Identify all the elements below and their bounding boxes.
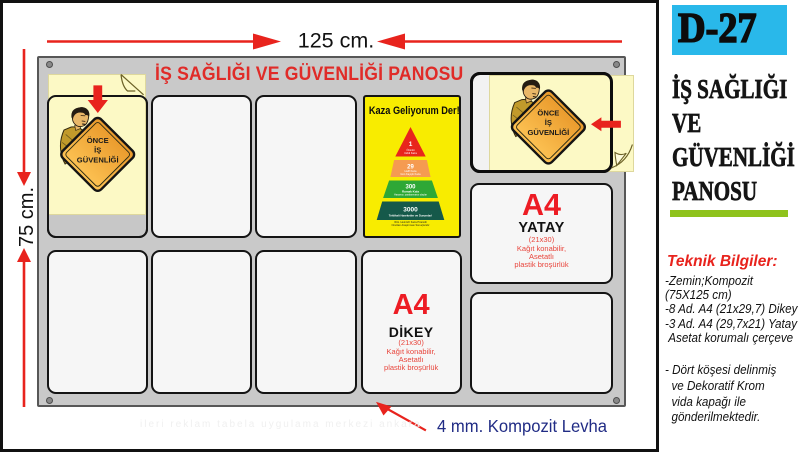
svg-text:125 cm.: 125 cm.: [298, 29, 374, 53]
svg-text:Tehlikeli Hareketler ve Duruml: Tehlikeli Hareketler ve Durumlar!: [389, 214, 433, 218]
svg-text:1: 1: [409, 141, 413, 148]
svg-text:Hasarsız, yaralanmasız olaylar: Hasarsız, yaralanmasız olaylar: [394, 194, 427, 197]
svg-text:Ciddi Kaza: Ciddi Kaza: [404, 151, 417, 155]
svg-text:Oranları Araştırması Sonuçları: Oranları Araştırması Sonuçlarıdır: [392, 223, 430, 227]
svg-text:Gün Kayıplı Kaza: Gün Kayıplı Kaza: [400, 172, 421, 176]
svg-text:75 cm.: 75 cm.: [16, 187, 38, 247]
svg-text:3000: 3000: [403, 207, 418, 214]
